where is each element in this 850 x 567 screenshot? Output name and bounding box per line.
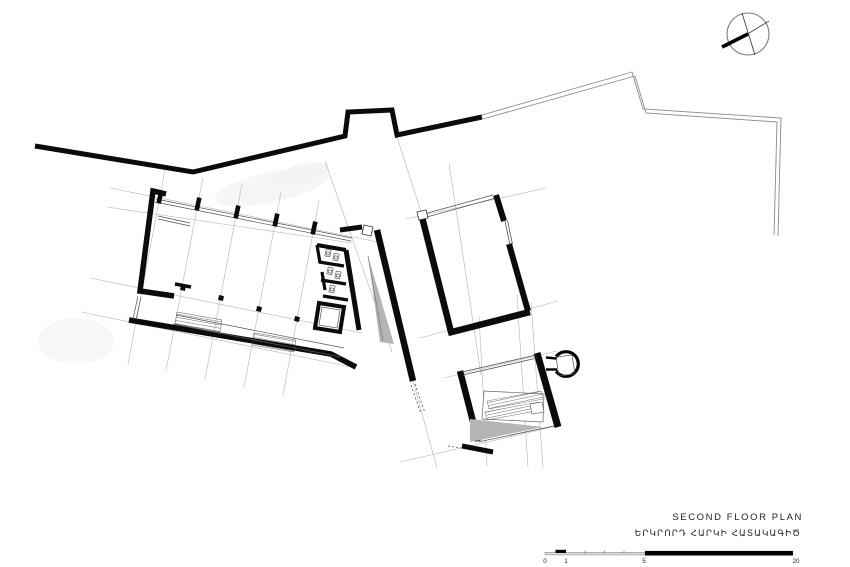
- column-base-marker: [417, 210, 428, 220]
- scale-label-5: 5: [642, 558, 646, 565]
- compass-north-needle: [722, 34, 748, 47]
- column-marker: [256, 306, 262, 312]
- ramp-edge-line: [368, 256, 383, 341]
- edge-line: [462, 355, 536, 372]
- stair-landing-marker: [530, 402, 544, 414]
- middle-wing-walls: [422, 195, 530, 333]
- title-block: SECOND FLOOR PLAN ԵՐԿՐՈՐԴ ՀԱՐԿԻ ՀԱՏԱԿԱԳԻ…: [635, 512, 803, 539]
- edge-line: [463, 358, 537, 375]
- toilet-fixture-icon: [325, 249, 331, 257]
- floor-plan-canvas: SECOND FLOOR PLAN ԵՐԿՐՈՐԴ ՀԱՐԿԻ ՀԱՏԱԿԱԳԻ…: [0, 0, 850, 567]
- building-middle-wing: [417, 195, 530, 333]
- scale-label-0: 0: [543, 558, 547, 565]
- wall-segment: [346, 250, 359, 330]
- elevator-shaft: [315, 303, 344, 332]
- plan-title: SECOND FLOOR PLAN: [672, 512, 803, 523]
- wall-segment: [323, 296, 348, 300]
- column-marker: [180, 285, 186, 291]
- scale-bar-unit-block: [556, 550, 567, 553]
- wall-segment: [140, 191, 174, 296]
- compass-axis-line: [742, 13, 755, 55]
- drawing-sheet: SECOND FLOOR PLAN ԵՐԿՐՈՐԴ ՀԱՐԿԻ ՀԱՏԱԿԱԳԻ…: [0, 0, 850, 567]
- wall-segment: [340, 227, 362, 230]
- toilet-fixture-icon: [329, 285, 335, 293]
- column-marker: [294, 316, 300, 322]
- wall-segment: [509, 244, 528, 311]
- column-marker: [310, 221, 317, 235]
- toilet-fixture-icon: [335, 271, 341, 279]
- column-marker: [194, 197, 201, 211]
- boundary-outer-line: [482, 72, 781, 236]
- window-line: [158, 219, 190, 226]
- wall-segment: [496, 195, 504, 221]
- facade-columns: [156, 190, 317, 322]
- building-lower-stair-block: [448, 352, 578, 452]
- grid-line: [449, 163, 481, 375]
- wall-segment: [462, 446, 493, 452]
- wall-segment: [422, 217, 451, 332]
- scale-label-1: 1: [564, 558, 568, 565]
- terrain-shade-blob: [38, 318, 114, 364]
- spiral-stair-turret: [546, 352, 578, 377]
- wall-segment: [448, 312, 530, 333]
- boundary-inner-line: [483, 76, 777, 235]
- site-boundary-line: [482, 72, 781, 236]
- column-marker: [233, 205, 240, 219]
- window-line: [424, 195, 493, 214]
- north-arrow-icon: [722, 13, 769, 55]
- column-marker: [218, 295, 224, 301]
- left-wing-glazing: [133, 199, 352, 357]
- building-left-wing: [129, 190, 362, 367]
- site-retaining-wall: [35, 110, 482, 172]
- scale-bar: 0 1 5 20: [543, 550, 800, 565]
- toilet-fixture-icon: [333, 253, 339, 261]
- grid-line: [531, 302, 543, 468]
- dashed-line: [415, 384, 425, 413]
- grid-line: [397, 137, 423, 218]
- turret-neck-wall: [546, 358, 557, 359]
- grid-line: [413, 381, 437, 468]
- wc-fixtures: [325, 249, 341, 293]
- dashed-line: [448, 446, 461, 448]
- wall-segment: [319, 262, 344, 266]
- wall-segment: [317, 245, 346, 250]
- plan-title-armenian: ԵՐԿՐՈՐԴ ՀԱՐԿԻ ՀԱՏԱԿԱԳԻԾ: [635, 529, 801, 539]
- toilet-fixture-icon: [327, 267, 333, 275]
- column-marker: [272, 213, 279, 227]
- window-line: [508, 220, 513, 244]
- wall-segment: [317, 245, 320, 263]
- window-line: [505, 221, 510, 245]
- dashed-line: [411, 385, 421, 414]
- retaining-wall-segment: [35, 110, 482, 172]
- ramp-wedge: [362, 225, 425, 414]
- scale-bar-long-block: [645, 551, 793, 556]
- window-line: [425, 199, 494, 218]
- column-base-marker: [362, 225, 373, 236]
- grid-line: [517, 295, 528, 467]
- scale-label-20: 20: [792, 558, 800, 565]
- stair-hatch-band: [252, 333, 296, 352]
